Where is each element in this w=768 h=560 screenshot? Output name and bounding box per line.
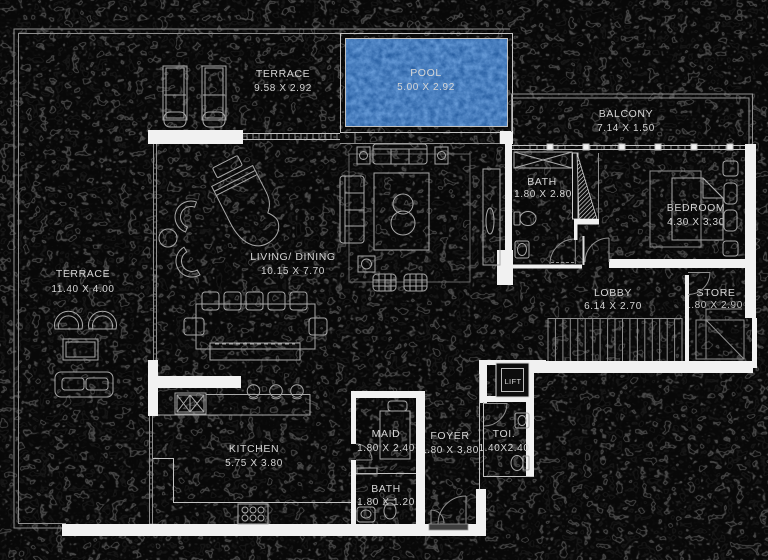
- svg-text:1.80 X 2.40: 1.80 X 2.40: [357, 443, 415, 454]
- svg-text:1.80 X 3.80: 1.80 X 3.80: [421, 445, 479, 456]
- svg-text:6.14 X 2.70: 6.14 X 2.70: [584, 301, 642, 312]
- svg-text:TOI.: TOI.: [493, 428, 516, 440]
- svg-text:LOBBY: LOBBY: [594, 287, 632, 299]
- svg-text:BEDROOM: BEDROOM: [667, 202, 725, 214]
- svg-text:10.15 X 7.70: 10.15 X 7.70: [261, 266, 325, 277]
- svg-text:5.00 X 2.92: 5.00 X 2.92: [397, 82, 455, 93]
- svg-text:MAID: MAID: [372, 428, 401, 440]
- svg-text:TERRACE: TERRACE: [256, 68, 310, 80]
- svg-text:5.75 X 3.80: 5.75 X 3.80: [225, 458, 283, 469]
- svg-text:1.80 X 2.80: 1.80 X 2.80: [514, 189, 572, 200]
- svg-text:LIVING/ DINING: LIVING/ DINING: [250, 251, 335, 263]
- svg-text:FOYER: FOYER: [430, 430, 469, 442]
- svg-text:11.40 X 4.00: 11.40 X 4.00: [51, 284, 114, 295]
- svg-text:BATH: BATH: [527, 176, 557, 188]
- svg-text:BATH: BATH: [371, 483, 401, 495]
- svg-text:4.30 X 3.30: 4.30 X 3.30: [667, 217, 725, 228]
- svg-text:TERRACE: TERRACE: [56, 268, 110, 280]
- svg-text:7.14 X 1.50: 7.14 X 1.50: [597, 123, 655, 134]
- svg-text:1.40X2.40: 1.40X2.40: [479, 443, 530, 454]
- svg-text:BALCONY: BALCONY: [599, 108, 653, 120]
- svg-text:LIFT: LIFT: [504, 377, 521, 386]
- svg-text:1.80 X 1.20: 1.80 X 1.20: [357, 497, 415, 508]
- svg-text:9.58 X 2.92: 9.58 X 2.92: [254, 83, 312, 94]
- svg-text:KITCHEN: KITCHEN: [229, 443, 279, 455]
- svg-text:POOL: POOL: [410, 67, 442, 79]
